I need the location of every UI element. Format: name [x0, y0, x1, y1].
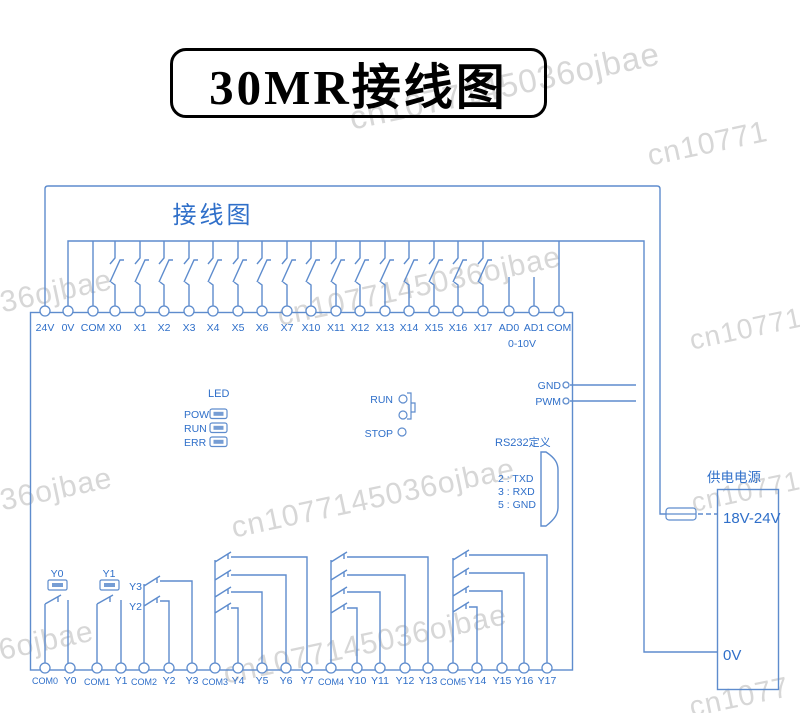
top-terminal-label: X13 — [376, 322, 395, 334]
relay-group-com4 — [331, 552, 428, 663]
top-terminal-label: X1 — [134, 322, 147, 334]
led-row-label: RUN — [184, 423, 207, 435]
top-terminal-label: X15 — [425, 322, 444, 334]
bottom-terminal-label: Y11 — [371, 675, 389, 687]
top-terminal-label: COM — [81, 322, 106, 334]
rs232-pin-label: 3 : RXD — [498, 486, 535, 498]
top-terminal-label: X7 — [281, 322, 294, 334]
bottom-terminal-label: COM3 — [202, 677, 228, 687]
power-supply-title: 供电电源 — [707, 470, 761, 485]
top-terminal-labels: 24V 0V COM X0 X1 X2 X3 X4 X5 X6 X7 X10 X… — [36, 322, 572, 350]
top-terminal-label: X12 — [351, 322, 370, 334]
bottom-terminal-label: Y14 — [468, 675, 487, 687]
bottom-terminal-label: Y1 — [115, 675, 128, 687]
top-terminal-label: X0 — [109, 322, 122, 334]
led-row-label: ERR — [184, 437, 207, 449]
bottom-terminal-label: Y10 — [348, 675, 367, 687]
bottom-terminal-label: Y2 — [163, 675, 176, 687]
run-stop-switch: RUN STOP — [365, 393, 415, 440]
power-negative-label: 0V — [723, 647, 741, 664]
power-24v-wire — [45, 186, 717, 520]
bottom-terminal-label: Y4 — [232, 675, 245, 687]
top-terminal-label: X2 — [158, 322, 171, 334]
rs232-pin-label: 2 : TXD — [498, 473, 534, 485]
bottom-terminal-label: Y6 — [280, 675, 293, 687]
relay-contact-label: Y3 — [129, 581, 142, 593]
relay-contact-label: Y2 — [129, 601, 142, 613]
led-panel-title: LED — [208, 388, 229, 400]
top-terminal-label: X14 — [400, 322, 419, 334]
bottom-terminal-label: Y15 — [493, 675, 512, 687]
top-terminal-label: 0V — [62, 322, 75, 334]
bottom-terminal-label: COM4 — [318, 677, 344, 687]
db9-connector-icon — [541, 452, 558, 526]
input-switch-array — [110, 241, 492, 306]
top-terminal-label: 24V — [36, 322, 55, 334]
relay-group-com3 — [215, 552, 307, 663]
relay-coil-label: Y0 — [51, 568, 64, 580]
top-terminal-row — [40, 306, 564, 316]
top-terminal-label: X6 — [256, 322, 269, 334]
stop-label: STOP — [365, 428, 393, 440]
rs232-pin-label: 5 : GND — [498, 499, 536, 511]
bottom-terminal-row — [40, 663, 552, 673]
bottom-terminal-label: Y7 — [301, 675, 314, 687]
power-0v-bus-wire — [68, 241, 717, 652]
top-terminal-label: X5 — [232, 322, 245, 334]
top-terminal-label: X10 — [302, 322, 321, 334]
gnd-label: GND — [538, 380, 562, 392]
analog-range-label: 0-10V — [508, 338, 536, 350]
pow-led-icon — [210, 409, 227, 419]
power-supply-box: 供电电源 18V-24V 0V — [707, 470, 781, 690]
bottom-terminal-label: COM0 — [32, 676, 58, 686]
bottom-terminal-label: COM2 — [131, 677, 157, 687]
bottom-terminal-labels: COM0 Y0 COM1 Y1 COM2 Y2 Y3 COM3 Y4 Y5 Y6… — [32, 675, 557, 687]
top-terminal-label: X17 — [474, 322, 493, 334]
err-led-icon — [210, 437, 227, 447]
top-terminal-label: X4 — [207, 322, 220, 334]
top-terminal-label: X11 — [327, 322, 345, 334]
rs232-title: RS232定义 — [495, 435, 551, 449]
diagram-label: 接线图 — [173, 202, 254, 229]
bottom-terminal-label: Y3 — [186, 675, 199, 687]
plc-board-outline — [31, 313, 573, 671]
switch-handle-icon — [407, 393, 415, 419]
relay-group-com5 — [453, 550, 547, 663]
top-terminal-label: X16 — [449, 322, 468, 334]
run-led-icon — [210, 423, 227, 433]
pwm-label: PWM — [535, 396, 561, 408]
bottom-terminal-label: Y12 — [396, 675, 415, 687]
bottom-terminal-label: Y5 — [256, 675, 269, 687]
top-terminal-label: COM — [547, 322, 572, 334]
relay-group-y0: Y0 — [45, 568, 68, 663]
bottom-terminal-label: Y17 — [538, 675, 557, 687]
top-terminal-label: X3 — [183, 322, 196, 334]
bottom-terminal-label: COM5 — [440, 677, 466, 687]
rs232-block: RS232定义 2 : TXD 3 : RXD 5 : GND — [495, 435, 558, 526]
bottom-terminal-label: Y16 — [515, 675, 534, 687]
bottom-terminal-label: Y0 — [64, 675, 77, 687]
product-diagram-image: cn1077145036ojbae cn10771 J36ojbae cn107… — [0, 0, 800, 713]
run-label: RUN — [370, 394, 393, 406]
led-panel: LED POW RUN ERR — [184, 388, 229, 449]
relay-group-y2-y3: Y3 Y2 — [129, 576, 192, 663]
bottom-terminal-label: COM1 — [84, 677, 110, 687]
led-row-label: POW — [184, 409, 209, 421]
top-terminal-label: AD0 — [499, 322, 520, 334]
relay-coil-label: Y1 — [103, 568, 116, 580]
power-positive-label: 18V-24V — [723, 510, 781, 527]
aux-output-pwm: PWM — [535, 396, 636, 408]
aux-output-gnd: GND — [538, 380, 636, 392]
bottom-terminal-label: Y13 — [419, 675, 438, 687]
wiring-diagram-svg: 接线图 24V 0V COM X0 X1 — [0, 0, 800, 713]
relay-group-y1: Y1 — [97, 568, 121, 663]
top-terminal-label: AD1 — [524, 322, 545, 334]
